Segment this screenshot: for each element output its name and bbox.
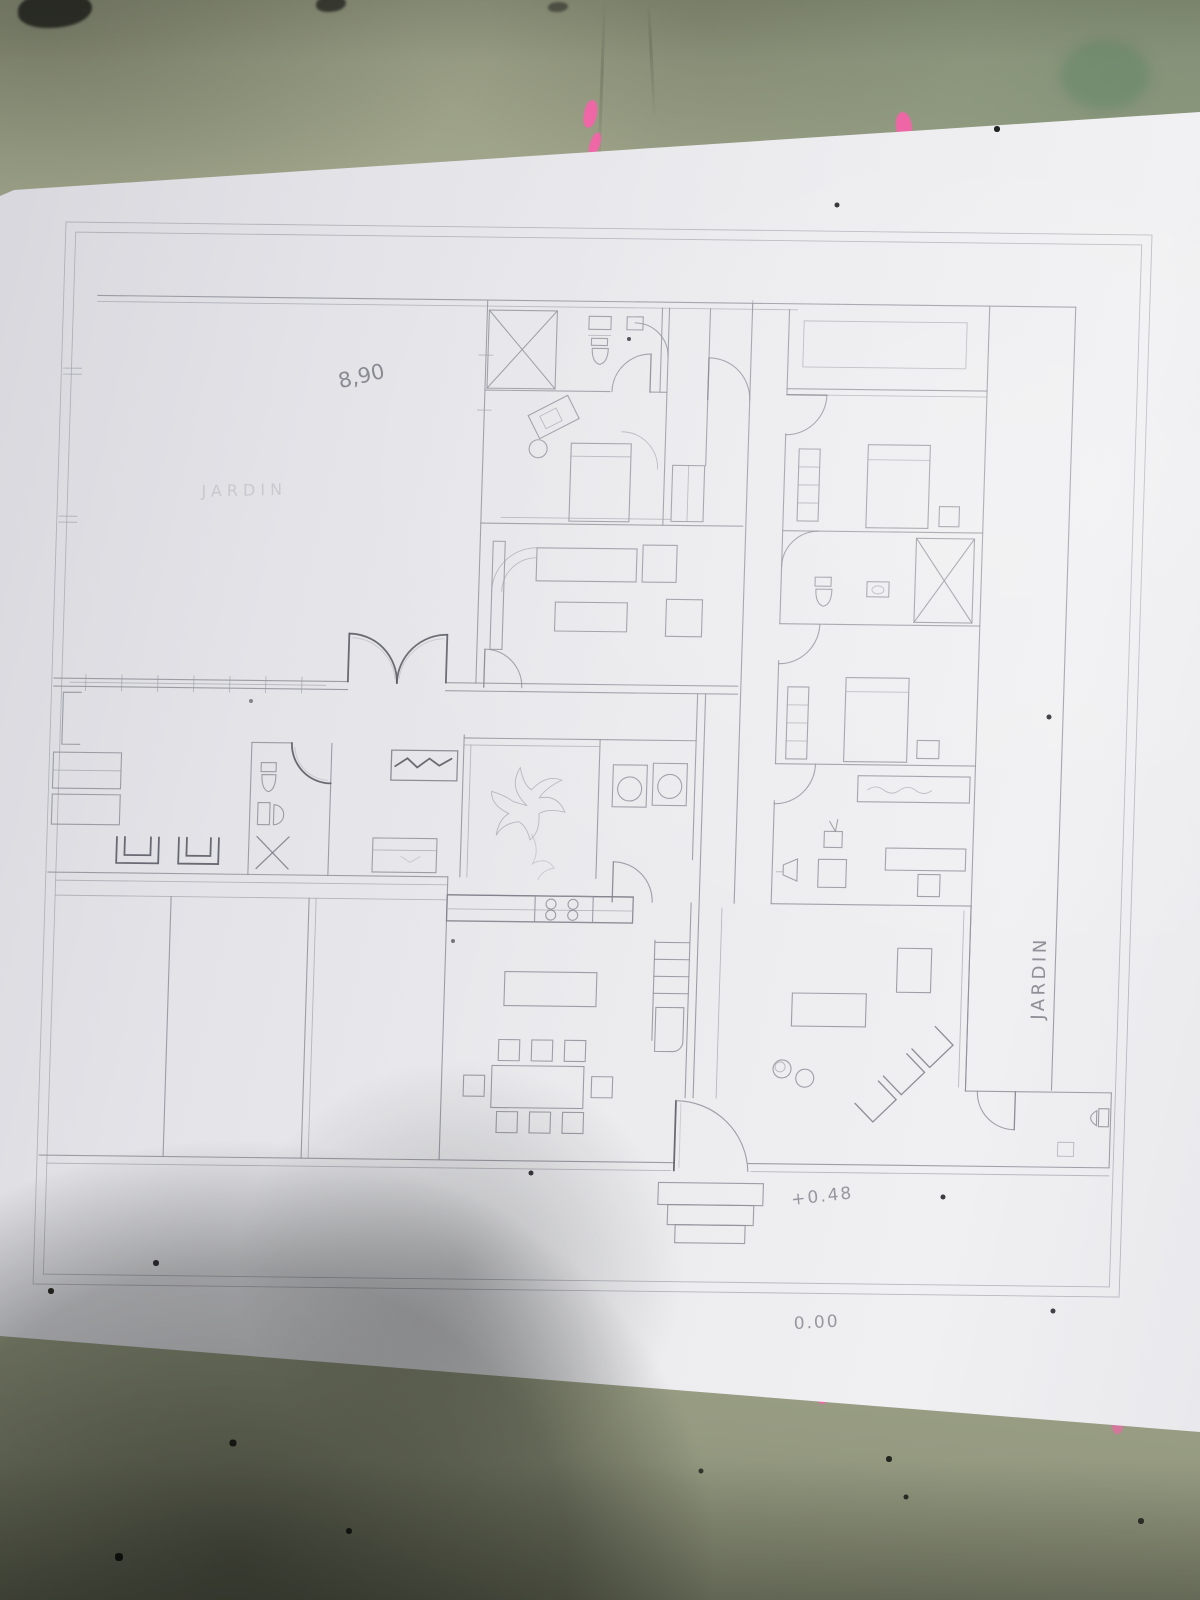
chair-symbol (564, 1040, 586, 1061)
entry-step (667, 1205, 754, 1226)
green-smudge (1060, 40, 1150, 110)
toilet-symbol (1098, 1109, 1109, 1127)
chair-symbol (591, 1077, 613, 1098)
door-leaf (1014, 1092, 1015, 1130)
sink-symbol (867, 582, 889, 597)
entry-step (675, 1225, 746, 1244)
garden-label-side: JARDIN (1028, 936, 1052, 1021)
patio (460, 735, 607, 881)
nightstand-symbol (939, 507, 960, 527)
entry-step (658, 1182, 764, 1205)
entrance (657, 1100, 766, 1243)
door-swing-arc (786, 395, 827, 435)
room-bedroom-right (783, 321, 989, 529)
plant-symbol (490, 767, 566, 840)
closet-symbol (797, 449, 820, 521)
double-doors (348, 634, 448, 684)
room-bedroom-mid (775, 624, 979, 766)
room-workshop (48, 692, 454, 885)
room-bathroom-right (780, 531, 983, 626)
counter-symbol (446, 895, 633, 923)
armchair-symbol (783, 859, 798, 881)
bed-symbol (569, 443, 631, 522)
sofa-symbol (490, 541, 505, 649)
desk-symbol (528, 395, 579, 438)
door-swing-arc (976, 1091, 1015, 1129)
door-swing-arc (291, 743, 332, 783)
side-table-symbol (773, 1060, 792, 1078)
room-living (771, 904, 971, 1123)
sofa-symbol (536, 548, 637, 582)
workbench-symbol (51, 794, 120, 825)
shelf-symbol (857, 776, 970, 803)
washer-symbol (652, 763, 687, 805)
closet-symbol (786, 687, 809, 759)
ink-stain (18, 0, 92, 28)
hall-sketches (372, 750, 458, 873)
garden-strip (963, 1091, 1111, 1168)
door-swing-arc (621, 432, 659, 469)
chair-symbol (498, 1039, 520, 1060)
dust-specks (0, 0, 2, 2)
side-table-symbol (795, 1069, 814, 1087)
sofa-symbol (912, 1027, 953, 1068)
room-bedroom-top (525, 307, 753, 524)
driveway (47, 895, 447, 1160)
room-study (771, 764, 975, 906)
site-boundary (41, 292, 1075, 1090)
chair-symbol (496, 1111, 518, 1132)
door-swing-arc (708, 358, 751, 401)
ink-stain (316, 0, 346, 12)
desk-symbol (885, 848, 966, 871)
chair-symbol (562, 1112, 584, 1133)
sink-symbol (257, 803, 270, 825)
kitchen-island-symbol (504, 972, 597, 1007)
door-leaf (348, 634, 349, 682)
shower-symbol (487, 310, 557, 389)
door-swing-arc (782, 531, 819, 567)
coffee-table-symbol (555, 602, 628, 632)
counter-symbol (62, 692, 82, 744)
chair-symbol (917, 874, 940, 896)
toilet-symbol (815, 577, 831, 586)
table-crease (647, 0, 656, 120)
door-swing-arc (674, 1101, 750, 1172)
room-laundry (602, 740, 696, 903)
annotations: 8,90 JARDIN JARDIN +0.48 0.00 (174, 357, 1069, 1337)
dimension-label: 8,90 (336, 359, 387, 393)
dining-table-symbol (491, 1065, 584, 1108)
bed-symbol (866, 445, 931, 529)
chair-symbol (531, 1040, 553, 1061)
toilet-symbol (261, 763, 276, 772)
terrace-planter (803, 321, 967, 369)
toilet-symbol (591, 338, 607, 345)
room-family (476, 517, 743, 690)
chair-symbol (529, 440, 548, 458)
chair-symbol (529, 1112, 551, 1133)
chair-symbol (116, 837, 159, 864)
door-leaf (708, 358, 709, 400)
sink-symbol (589, 316, 611, 329)
shower-symbol (914, 538, 975, 623)
stove-symbol (534, 896, 593, 923)
photo-scene: 8,90 JARDIN JARDIN +0.48 0.00 (0, 0, 1200, 1600)
door-leaf (446, 635, 447, 683)
tv-cabinet-symbol (896, 948, 931, 992)
armchair-symbol (642, 545, 677, 582)
level-label-entrance: +0.48 (790, 1183, 854, 1210)
stairs (652, 940, 690, 1051)
sink-symbol (1057, 1142, 1073, 1156)
coffee-table-symbol (791, 993, 866, 1027)
door-leaf (650, 354, 651, 392)
lamp-symbol (824, 831, 842, 847)
ink-stain (548, 2, 568, 12)
washer-symbol (612, 765, 647, 807)
corridor-walls (728, 303, 989, 1091)
paper-sheet: 8,90 JARDIN JARDIN +0.48 0.00 (0, 0, 1200, 1600)
main-wall (53, 674, 737, 698)
workbench-symbol (52, 752, 121, 789)
bench-symbol (372, 838, 437, 873)
level-label-ground: 0.00 (793, 1312, 840, 1335)
table-symbol (391, 750, 458, 781)
door-swing-arc (634, 323, 669, 357)
door-leaf (484, 649, 485, 687)
chair-symbol (818, 859, 847, 887)
pink-marker-stain (581, 99, 600, 129)
nightstand-symbol (917, 740, 940, 758)
room-bathroom-mid (248, 742, 332, 875)
stair-landing (655, 1007, 684, 1051)
chair-symbol (178, 838, 219, 864)
room-kitchen (439, 877, 634, 1162)
door-swing-arc (774, 764, 815, 804)
garden-label-faint: JARDIN (200, 480, 287, 501)
door-swing-arc (348, 634, 399, 684)
bottom-wall (39, 1155, 1109, 1176)
floor-plan-drawing: 8,90 JARDIN JARDIN +0.48 0.00 (5, 200, 1160, 1353)
door-swing-arc (484, 649, 523, 687)
chair-symbol (463, 1075, 485, 1096)
bed-symbol (844, 678, 910, 763)
door-leaf (674, 1101, 676, 1171)
door-swing-arc (397, 634, 448, 684)
sofa-symbol (855, 1081, 896, 1122)
room-bathroom-top (469, 300, 670, 685)
drawing-frame (33, 222, 1152, 1297)
door-swing-arc (612, 862, 653, 902)
closet-symbol (671, 465, 705, 521)
sofa-symbol (883, 1054, 924, 1095)
door-swing-arc (779, 624, 820, 664)
door-leaf (612, 862, 613, 902)
divider-wall (685, 694, 729, 1098)
sofa-group (855, 1027, 953, 1122)
tv-cabinet-symbol (665, 599, 702, 636)
door-swing-arc (612, 354, 651, 392)
